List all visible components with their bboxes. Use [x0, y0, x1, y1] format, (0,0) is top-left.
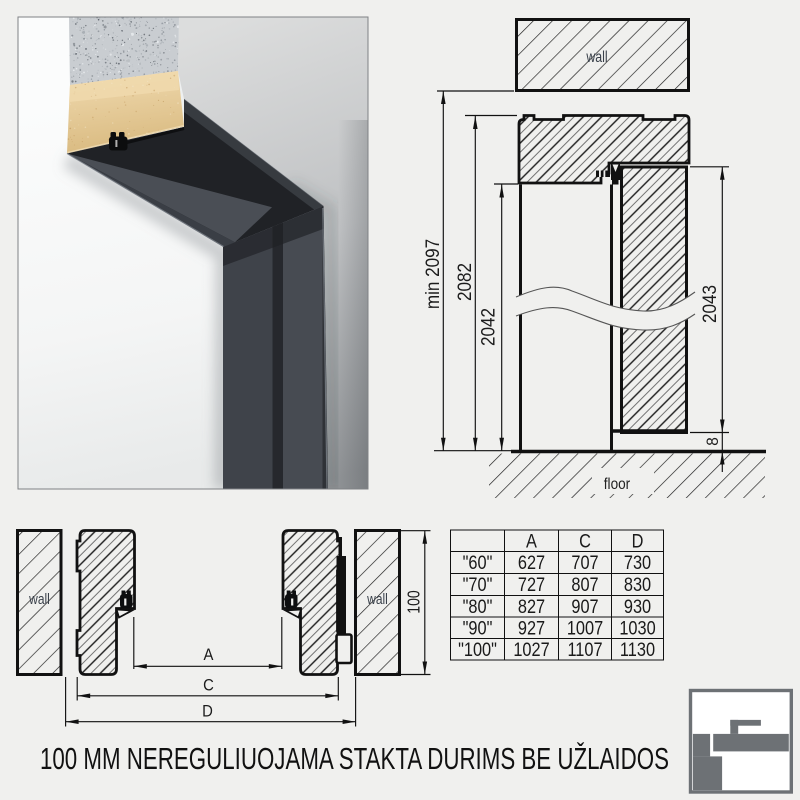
- svg-text:2042: 2042: [477, 308, 498, 346]
- svg-text:907: 907: [571, 596, 598, 617]
- svg-text:827: 827: [518, 596, 545, 617]
- svg-text:100 MM NEREGULIUOJAMA STAKTA D: 100 MM NEREGULIUOJAMA STAKTA DURIMS BE U…: [40, 740, 669, 776]
- svg-text:C: C: [579, 530, 591, 551]
- svg-text:min 2097: min 2097: [422, 239, 443, 309]
- svg-text:1107: 1107: [567, 639, 602, 660]
- svg-text:930: 930: [624, 596, 651, 617]
- svg-text:1130: 1130: [620, 639, 655, 660]
- svg-text:"80": "80": [463, 596, 493, 617]
- svg-text:627: 627: [518, 552, 545, 573]
- svg-text:wall: wall: [366, 591, 388, 608]
- svg-text:730: 730: [624, 552, 651, 573]
- svg-text:D: D: [202, 703, 213, 721]
- svg-text:"90": "90": [463, 617, 493, 638]
- svg-text:floor: floor: [604, 476, 630, 493]
- svg-text:1007: 1007: [567, 617, 603, 638]
- svg-text:807: 807: [571, 574, 598, 595]
- svg-text:"70": "70": [463, 574, 493, 595]
- svg-text:A: A: [204, 646, 214, 664]
- svg-text:C: C: [203, 677, 214, 695]
- svg-text:A: A: [526, 530, 537, 551]
- svg-text:707: 707: [571, 552, 598, 573]
- svg-text:D: D: [632, 530, 644, 551]
- svg-text:830: 830: [624, 574, 651, 595]
- svg-text:wall: wall: [585, 48, 607, 66]
- svg-text:100: 100: [404, 590, 424, 613]
- svg-text:wall: wall: [28, 591, 50, 608]
- svg-text:"60": "60": [463, 552, 493, 573]
- svg-text:"100": "100": [458, 639, 497, 660]
- svg-text:2082: 2082: [454, 263, 475, 301]
- svg-text:2043: 2043: [699, 285, 720, 323]
- svg-text:8: 8: [703, 437, 722, 446]
- svg-text:1030: 1030: [619, 617, 655, 638]
- svg-text:1027: 1027: [513, 639, 549, 660]
- svg-text:727: 727: [518, 574, 545, 595]
- svg-text:927: 927: [518, 617, 545, 638]
